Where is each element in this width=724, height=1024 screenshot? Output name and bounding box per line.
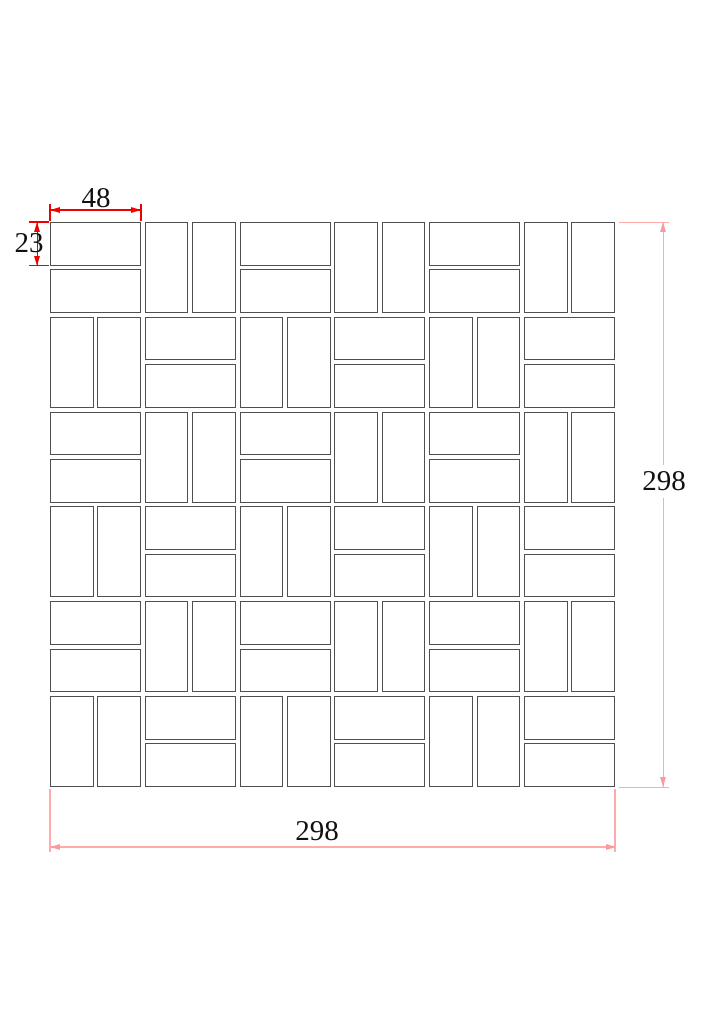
tile-chip — [192, 222, 236, 313]
dim-arrow-up-icon — [660, 222, 666, 232]
tile-chip — [334, 412, 378, 503]
tile-chip — [334, 743, 425, 787]
tile-chip — [192, 601, 236, 692]
tile-chip — [50, 269, 141, 313]
tile-chip — [524, 743, 615, 787]
dim-arrow-down-icon — [660, 777, 666, 787]
tile-chip — [240, 506, 284, 597]
tile-chip — [287, 506, 331, 597]
dimension-line — [663, 222, 664, 787]
tile-chip — [145, 364, 236, 408]
drawing-canvas: 48 23 298 298 — [0, 0, 724, 1024]
tile-chip — [50, 696, 94, 787]
tile-chip — [477, 317, 521, 408]
tile-chip — [50, 317, 94, 408]
dim-label-sheet-height: 298 — [633, 465, 695, 498]
tile-chip — [429, 317, 473, 408]
tile-chip — [429, 601, 520, 645]
tile-chip — [429, 222, 520, 266]
tile-chip — [571, 601, 615, 692]
tile-chip — [524, 412, 568, 503]
tile-chip — [287, 317, 331, 408]
tile-chip — [571, 222, 615, 313]
tile-chip — [145, 696, 236, 740]
tile-chip — [97, 696, 141, 787]
tile-chip — [97, 506, 141, 597]
tile-chip — [429, 459, 520, 503]
tile-chip — [50, 412, 141, 456]
tile-chip — [334, 696, 425, 740]
tile-chip — [145, 317, 236, 361]
tile-chip — [50, 601, 141, 645]
tile-chip — [382, 601, 426, 692]
dim-label-sheet-width: 298 — [282, 817, 352, 846]
tile-chip — [50, 506, 94, 597]
tile-chip — [240, 459, 331, 503]
tile-chip — [334, 601, 378, 692]
tile-chip — [524, 601, 568, 692]
tile-chip — [477, 696, 521, 787]
tile-chip — [382, 412, 426, 503]
tile-chip — [382, 222, 426, 313]
tile-chip — [50, 222, 141, 266]
extension-line — [614, 789, 615, 852]
tile-chip — [97, 317, 141, 408]
tile-chip — [240, 649, 331, 693]
tile-chip — [429, 696, 473, 787]
dim-arrow-right-icon — [131, 207, 141, 213]
tile-chip — [524, 696, 615, 740]
tile-chip — [240, 317, 284, 408]
tile-chip — [334, 317, 425, 361]
tile-chip — [50, 649, 141, 693]
tile-chip — [429, 506, 473, 597]
dim-arrow-right-icon — [606, 844, 616, 850]
dim-label-chip-width: 48 — [72, 184, 120, 213]
tile-chip — [145, 506, 236, 550]
dim-arrow-left-icon — [50, 207, 60, 213]
tile-chip — [334, 554, 425, 598]
tile-chip — [429, 269, 520, 313]
tile-chip — [524, 317, 615, 361]
tile-chip — [429, 412, 520, 456]
extension-line — [49, 789, 50, 852]
dim-label-chip-height: 23 — [8, 229, 50, 258]
tile-chip — [571, 412, 615, 503]
tile-chip — [145, 554, 236, 598]
tile-chip — [240, 222, 331, 266]
tile-chip — [145, 601, 189, 692]
tile-chip — [524, 364, 615, 408]
tile-chip — [334, 364, 425, 408]
tile-chip — [287, 696, 331, 787]
tile-chip — [145, 743, 236, 787]
tile-chip — [524, 222, 568, 313]
tile-chip — [524, 554, 615, 598]
tile-chip — [145, 222, 189, 313]
tile-chip — [240, 601, 331, 645]
dim-arrow-left-icon — [50, 844, 60, 850]
tile-chip — [334, 222, 378, 313]
tile-chip — [50, 459, 141, 503]
tile-chip — [334, 506, 425, 550]
tile-chip — [240, 412, 331, 456]
tile-chip — [477, 506, 521, 597]
tile-chip — [145, 412, 189, 503]
tile-chip — [192, 412, 236, 503]
tile-chip — [240, 269, 331, 313]
tile-chip — [524, 506, 615, 550]
tile-chip — [240, 696, 284, 787]
tile-chip — [429, 649, 520, 693]
